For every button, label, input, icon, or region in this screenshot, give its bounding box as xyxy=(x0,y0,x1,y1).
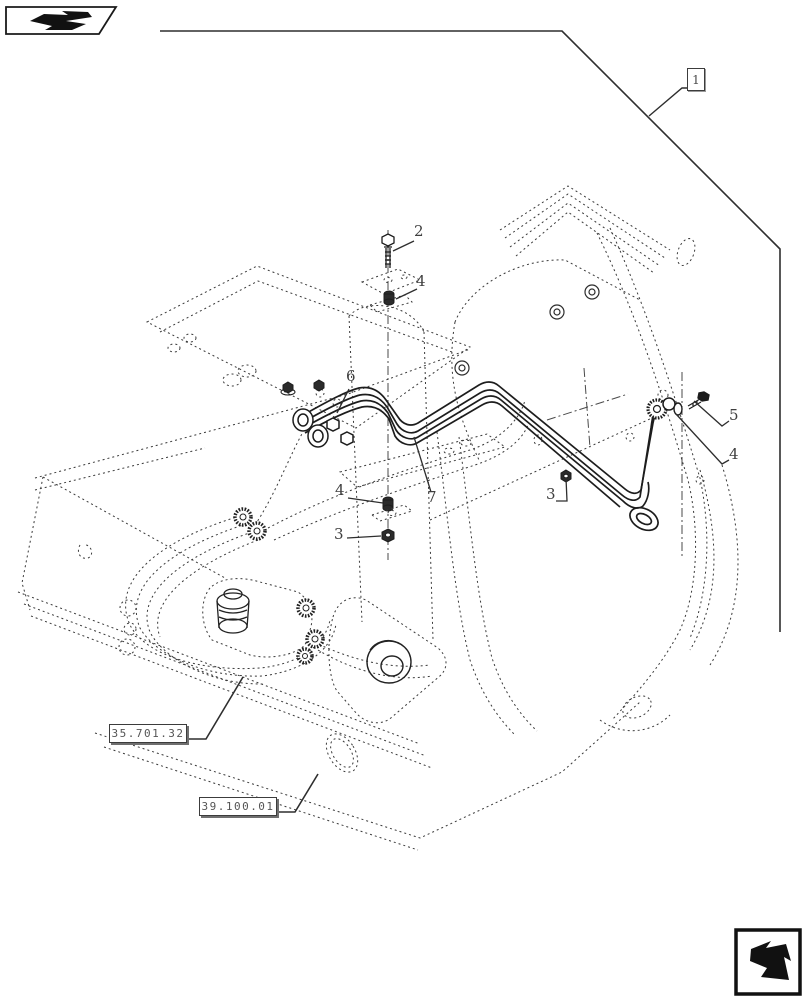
tower-outline xyxy=(340,305,542,640)
next-page-icon[interactable] xyxy=(736,930,800,994)
deck-plate-outline xyxy=(35,266,470,490)
callout-5: 5 xyxy=(729,408,739,423)
callout-3-right: 3 xyxy=(546,487,556,502)
hose-fittings xyxy=(235,509,323,663)
callout-2: 2 xyxy=(414,224,424,239)
centerlines xyxy=(388,230,682,560)
clamp-plate-top xyxy=(362,269,420,294)
deck-plugs xyxy=(281,380,324,395)
callout-3-mid: 3 xyxy=(334,527,344,542)
reference-box-39-100-01[interactable]: 39.100.01 xyxy=(199,797,277,816)
reference-box-35-701-32[interactable]: 35.701.32 xyxy=(109,724,187,743)
prev-page-icon[interactable] xyxy=(6,7,116,34)
chassis-outline xyxy=(18,477,640,850)
frame-grommets xyxy=(455,285,599,375)
kit-callout-1: 1 xyxy=(687,68,705,91)
parts-diagram-page: 1 2 4 6 4 3 7 3 5 4 35.701.32 39.100.01 xyxy=(0,0,808,1000)
right-frame-outline xyxy=(437,186,738,735)
tube-fittings-right xyxy=(648,392,709,418)
diagram-artwork xyxy=(0,0,808,1000)
hydraulic-tubes xyxy=(305,382,662,535)
tube-unions-left xyxy=(293,409,353,447)
callout-4-top: 4 xyxy=(416,274,426,289)
callout-4-right: 4 xyxy=(729,447,739,462)
spacer-top xyxy=(384,291,394,305)
callout-7: 7 xyxy=(427,490,437,505)
callout-4-mid: 4 xyxy=(335,483,345,498)
brake-reservoir xyxy=(217,589,249,633)
callout-6: 6 xyxy=(346,369,356,384)
nut-mid xyxy=(382,529,394,542)
